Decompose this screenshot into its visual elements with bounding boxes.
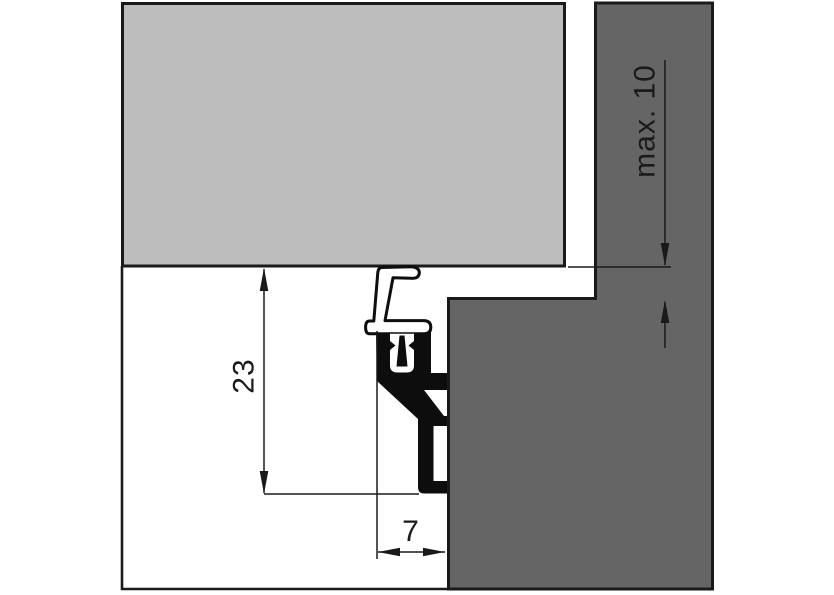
cross-section-diagram: 23 7 max. 10 (0, 0, 834, 595)
dim-gap-label: max. 10 (629, 64, 662, 178)
dim-height-label: 23 (228, 358, 261, 393)
door-panel (123, 4, 565, 267)
dim-width-label: 7 (402, 515, 420, 548)
dim-height-arrow-down (260, 471, 269, 494)
dim-width-arrow-right (423, 548, 445, 557)
dim-width-arrow-left (378, 548, 400, 557)
dim-height-arrow-up (260, 268, 269, 291)
drawing-border (122, 266, 448, 589)
sealing-lip (366, 267, 431, 334)
technical-drawing: 23 7 max. 10 (0, 0, 834, 595)
